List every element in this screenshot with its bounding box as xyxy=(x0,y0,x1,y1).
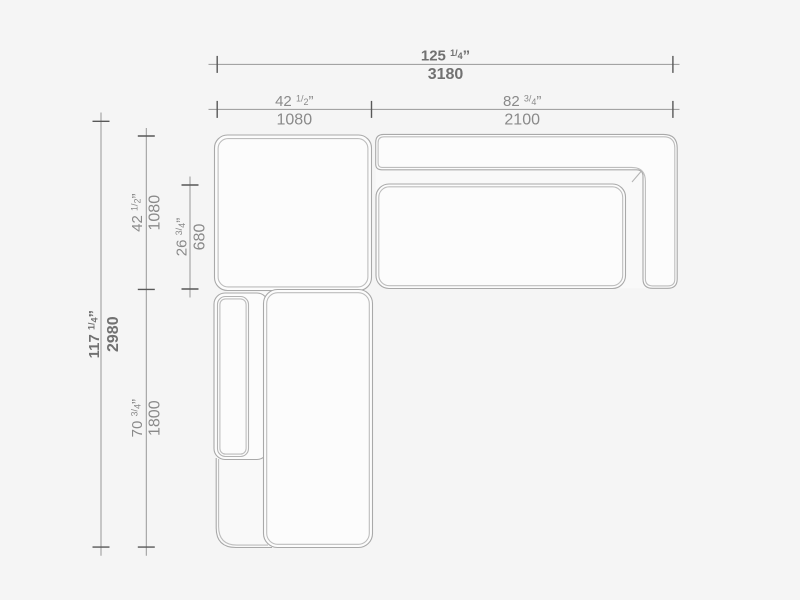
svg-text:3180: 3180 xyxy=(428,66,464,83)
svg-text:82 3/4”: 82 3/4” xyxy=(503,93,541,110)
svg-text:26 3/4”: 26 3/4” xyxy=(174,218,191,256)
svg-text:2980: 2980 xyxy=(105,316,122,352)
svg-text:70 3/4”: 70 3/4” xyxy=(129,399,146,437)
svg-text:1080: 1080 xyxy=(277,112,313,129)
svg-text:117 1/4”: 117 1/4” xyxy=(86,310,103,358)
svg-text:1800: 1800 xyxy=(147,400,164,436)
svg-text:680: 680 xyxy=(192,224,209,251)
svg-text:1080: 1080 xyxy=(147,195,164,231)
svg-text:125 1/4”: 125 1/4” xyxy=(421,47,470,64)
svg-text:42 1/2”: 42 1/2” xyxy=(275,93,313,110)
svg-text:2100: 2100 xyxy=(504,112,540,129)
svg-text:42 1/2”: 42 1/2” xyxy=(129,193,146,231)
